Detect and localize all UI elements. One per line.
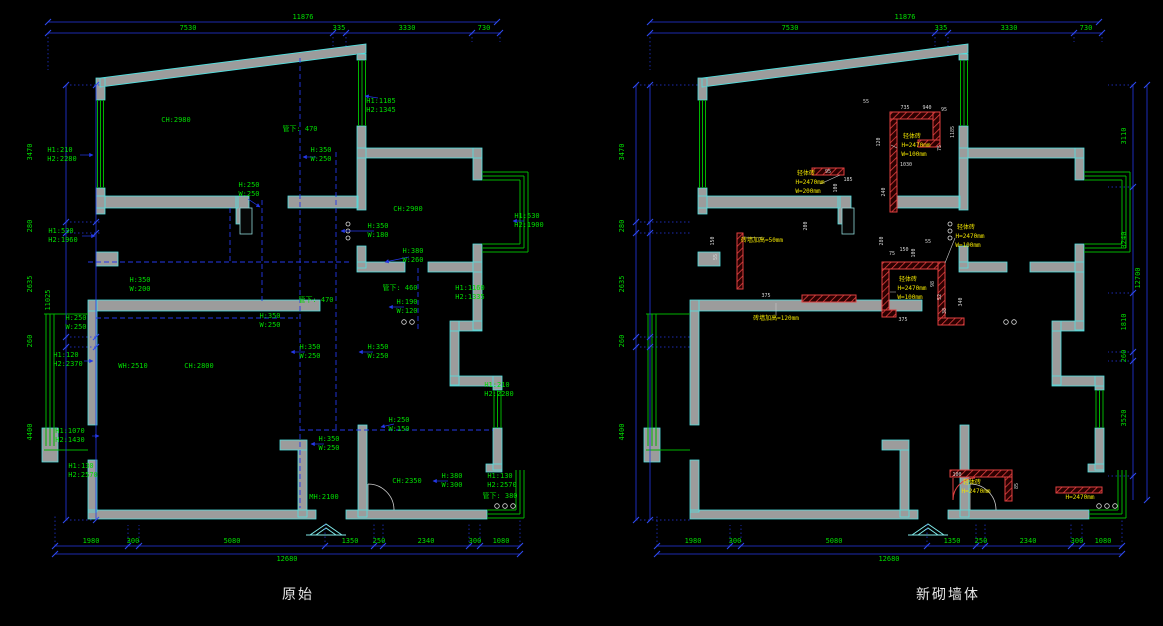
dim-label: W:120 [396, 307, 417, 315]
dim-label: 11025 [44, 289, 52, 310]
small-dim-label: 100 [911, 248, 917, 257]
dim-label: 2635 [618, 276, 626, 293]
new-wall-label: 轻体砖 [899, 275, 917, 283]
dim-label: H1:530 [514, 212, 539, 220]
dim-label: H1:1070 [55, 427, 85, 435]
dim-label: 1350 [342, 537, 359, 545]
dim-label: 280 [26, 220, 34, 233]
new-wall-label: 轻体砖 [963, 478, 981, 486]
small-dim-label: 95 [825, 169, 831, 175]
dim-label: 7530 [782, 24, 799, 32]
dim-label: 300 [469, 537, 482, 545]
dim-label: 管下: 380 [482, 491, 517, 500]
dim-label: H1:1185 [366, 97, 396, 105]
small-dim-label: 38 [942, 308, 948, 314]
dim-label: CH:2980 [161, 116, 191, 124]
dim-label: 7530 [180, 24, 197, 32]
dim-label: 3110 [1120, 128, 1128, 145]
small-dim-label: 100 [833, 183, 839, 192]
small-dim-label: 240 [881, 187, 887, 196]
dim-label: 1350 [944, 537, 961, 545]
dim-label: H2:1960 [48, 236, 78, 244]
dim-label: H1:210 [47, 146, 72, 154]
dim-label: H1:210 [484, 381, 509, 389]
new-wall-label: W=100mm [901, 151, 927, 158]
dim-label: H2:2280 [484, 390, 514, 398]
dim-label: 管下: 470 [282, 124, 317, 133]
dim-label: 12700 [1134, 267, 1142, 288]
dim-label: 1980 [685, 537, 702, 545]
dim-label: 11876 [894, 13, 915, 21]
new-wall-label: H=2470mm [962, 488, 991, 495]
dim-label: 3470 [26, 144, 34, 161]
small-dim-label: 55 [925, 239, 931, 245]
small-dim-label: 375 [898, 317, 907, 323]
dim-label: H2:1900 [514, 221, 544, 229]
dim-label: 300 [127, 537, 140, 545]
small-dim-label: 280 [879, 236, 885, 245]
dim-label: WH:2510 [118, 362, 148, 370]
dim-label: H:190 [396, 298, 417, 306]
dim-label: 2340 [418, 537, 435, 545]
dim-label: H:350 [129, 276, 150, 284]
small-dim-label: 1185 [950, 126, 956, 138]
cad-canvas: 1187675303353330730110253470280263526044… [0, 0, 1163, 626]
dim-label: 4400 [618, 424, 626, 441]
dim-label: H2:1345 [366, 106, 396, 114]
dim-label: H2:2280 [47, 155, 77, 163]
dim-label: H1:130 [68, 462, 93, 470]
dim-label: 3330 [399, 24, 416, 32]
dim-label: 5080 [826, 537, 843, 545]
dim-label: H2:2570 [487, 481, 517, 489]
small-dim-label: 85 [1014, 483, 1020, 489]
dim-label: H1:1160 [455, 284, 485, 292]
dim-label: W:180 [367, 231, 388, 239]
small-dim-label: 150 [899, 247, 908, 253]
dim-label: 730 [478, 24, 491, 32]
small-dim-label: 120 [876, 137, 882, 146]
dim-label: CH:2800 [184, 362, 214, 370]
plan-caption-original: 原始 [282, 584, 314, 604]
small-dim-label: 75 [889, 251, 895, 257]
new-wall-label: H=2470mm [902, 142, 931, 149]
dim-label: 335 [333, 24, 346, 32]
small-dim-label: 940 [922, 105, 931, 111]
new-wall-label: 轻体砖 [903, 132, 921, 140]
dim-label: 2340 [1020, 537, 1037, 545]
small-dim-label: 55 [863, 99, 869, 105]
dim-label: W:250 [238, 190, 259, 198]
small-dim-label: 95 [941, 107, 947, 113]
small-dim-label: 375 [761, 293, 770, 299]
dim-label: W:150 [388, 425, 409, 433]
dim-label: 5080 [224, 537, 241, 545]
new-wall-label: 轻体砖 [797, 169, 815, 177]
dim-label: W:260 [402, 256, 423, 264]
dim-label: H:350 [367, 222, 388, 230]
small-dim-label: 55 [713, 254, 719, 260]
dim-label: H:350 [367, 343, 388, 351]
dim-label: 3330 [1001, 24, 1018, 32]
new-wall-label: H=2470mm [1066, 494, 1095, 501]
dim-label: H2:1335 [455, 293, 485, 301]
small-dim-label: 1030 [900, 162, 912, 168]
new-wall-label: 轻体砖 [957, 223, 975, 231]
dim-label: 3240 [1120, 232, 1128, 249]
new-wall-label: W=100mm [897, 294, 923, 301]
dim-label: 335 [935, 24, 948, 32]
small-dim-label: 98 [930, 281, 936, 287]
dim-label: H:350 [259, 312, 280, 320]
new-wall-label: W=100mm [955, 242, 981, 249]
dim-label: H:380 [441, 472, 462, 480]
dim-label: H2:2370 [53, 360, 83, 368]
dim-label: 12680 [878, 555, 899, 563]
small-dim-label: 340 [958, 297, 964, 306]
new-wall-label: W=200mm [795, 188, 821, 195]
dim-label: H:350 [310, 146, 331, 154]
small-dim-label: 75 [937, 145, 943, 151]
dim-label: 300 [729, 537, 742, 545]
dim-label: 管下: 460 [382, 283, 417, 292]
dim-label: 2635 [26, 276, 34, 293]
dim-label: 1080 [1095, 537, 1112, 545]
dim-label: H2:2570 [68, 471, 98, 479]
dim-label: 12680 [276, 555, 297, 563]
small-dim-label: 200 [803, 221, 809, 230]
dim-label: W:250 [299, 352, 320, 360]
dim-label: 250 [373, 537, 386, 545]
new-wall-label: H=2470mm [898, 285, 927, 292]
small-dim-label: 185 [843, 177, 852, 183]
walls [42, 44, 502, 519]
dim-label: 1080 [493, 537, 510, 545]
dim-label: H:250 [388, 416, 409, 424]
dim-label: 280 [618, 220, 626, 233]
dim-label: 300 [1071, 537, 1084, 545]
dim-label: W:250 [259, 321, 280, 329]
dim-label: MH:2100 [309, 493, 339, 501]
entry-arch-icon [306, 524, 346, 535]
dim-label: CH:2350 [392, 477, 422, 485]
new-wall-label: 砖墙加高=50mm [741, 236, 783, 244]
dim-label: 11876 [292, 13, 313, 21]
new-wall-label: H=2470mm [956, 233, 985, 240]
dim-label: W:250 [310, 155, 331, 163]
small-dim-label: 735 [900, 105, 909, 111]
dim-label: W:250 [65, 323, 86, 331]
new-wall-label: 砖墙加高=120mm [753, 314, 799, 322]
dim-label: 管下: 470 [298, 295, 333, 304]
column [240, 208, 252, 234]
dim-label: H:250 [65, 314, 86, 322]
dim-label: H:350 [299, 343, 320, 351]
small-dim-label: 150 [710, 236, 716, 245]
dim-label: W:300 [441, 481, 462, 489]
dim-label: 1980 [83, 537, 100, 545]
dim-label: H:380 [402, 247, 423, 255]
cad-drawing-area: 1187675303353330730110253470280263526044… [0, 0, 1163, 626]
dim-label: 3520 [1120, 410, 1128, 427]
dim-label: 3470 [618, 144, 626, 161]
dim-label: 730 [1080, 24, 1093, 32]
plan-caption-new-walls: 新砌墙体 [916, 584, 980, 604]
dim-label: W:200 [129, 285, 150, 293]
dim-label: H2:1430 [55, 436, 85, 444]
door-swing [368, 484, 394, 510]
dim-label: W:250 [318, 444, 339, 452]
dim-label: 4400 [26, 424, 34, 441]
dim-label: H:350 [318, 435, 339, 443]
dim-label: 260 [1120, 350, 1128, 363]
dim-label: H1:530 [48, 227, 73, 235]
small-dim-label: 52 [937, 294, 943, 300]
dim-label: W:250 [367, 352, 388, 360]
dim-label: CH:2900 [393, 205, 423, 213]
dim-label: H:250 [238, 181, 259, 189]
dim-label: 1810 [1120, 314, 1128, 331]
dim-label: 250 [975, 537, 988, 545]
dim-label: 260 [618, 335, 626, 348]
dim-label: H1:130 [487, 472, 512, 480]
small-dim-label: 100 [952, 472, 961, 478]
new-wall-label: H=2470mm [796, 179, 825, 186]
dim-label: H1:120 [53, 351, 78, 359]
dim-label: 260 [26, 335, 34, 348]
